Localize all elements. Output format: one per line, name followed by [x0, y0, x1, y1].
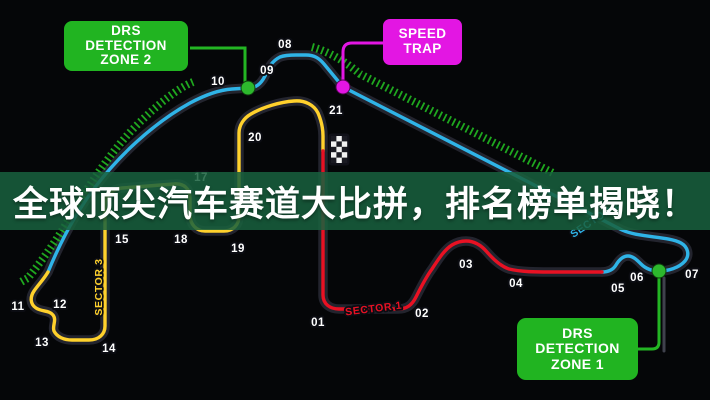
speed-trap-dot [336, 80, 350, 94]
turn-label-12: 12 [53, 299, 67, 311]
drs-detection-zone-2-box: DRS DETECTION ZONE 2 [64, 21, 188, 71]
turn-label-20: 20 [248, 132, 262, 144]
sector-1-label: SECTOR 1 [345, 300, 403, 319]
drs-zone-1-connector [638, 278, 659, 349]
start-finish-flag-icon [329, 134, 350, 166]
headline-banner: 全球顶尖汽车赛道大比拼，排名榜单揭晓！ [0, 172, 710, 230]
turn-label-11: 11 [11, 301, 24, 313]
drs-detection-dot-1 [652, 264, 666, 278]
turn-label-14: 14 [102, 343, 116, 355]
turn-label-02: 02 [415, 308, 429, 320]
speed-trap-line2: TRAP [403, 42, 441, 57]
turn-label-19: 19 [231, 243, 245, 255]
turn-label-13: 13 [35, 337, 49, 349]
speed-trap-box: SPEED TRAP [383, 19, 462, 65]
turn-label-04: 04 [509, 278, 523, 290]
speed-trap-line1: SPEED [399, 27, 447, 42]
drs-zone-2-line2: DETECTION [85, 39, 167, 54]
turn-label-08: 08 [278, 39, 292, 51]
turn-label-15: 15 [115, 234, 129, 246]
speed-trap-connector [343, 43, 383, 80]
drs-zone-2-line1: DRS [111, 24, 141, 39]
track-sector2-path [48, 55, 688, 272]
turn-label-06: 06 [630, 272, 644, 284]
turn-label-01: 01 [311, 317, 325, 329]
sector-3-label: SECTOR 3 [93, 258, 105, 315]
turn-label-09: 09 [260, 65, 274, 77]
turn-label-03: 03 [459, 259, 473, 271]
drs-zone-1-line1: DRS [562, 326, 593, 341]
turn-label-10: 10 [211, 76, 225, 88]
track-map-page: SECTOR 1 SECTOR 2 SECTOR 3 01 02 03 04 0… [0, 0, 710, 400]
drs-zone-1-line2: DETECTION [535, 341, 620, 356]
turn-label-05: 05 [611, 283, 625, 295]
headline-text: 全球顶尖汽车赛道大比拼，排名榜单揭晓！ [13, 176, 697, 227]
drs-detection-dot-2 [241, 81, 255, 95]
drs-zone-1-line3: ZONE 1 [551, 357, 604, 372]
turn-label-18: 18 [174, 234, 188, 246]
drs-zone-2-line3: ZONE 2 [100, 53, 151, 68]
turn-label-21: 21 [329, 105, 343, 117]
drs-detection-zone-1-box: DRS DETECTION ZONE 1 [517, 318, 638, 380]
turn-label-07: 07 [685, 269, 699, 281]
